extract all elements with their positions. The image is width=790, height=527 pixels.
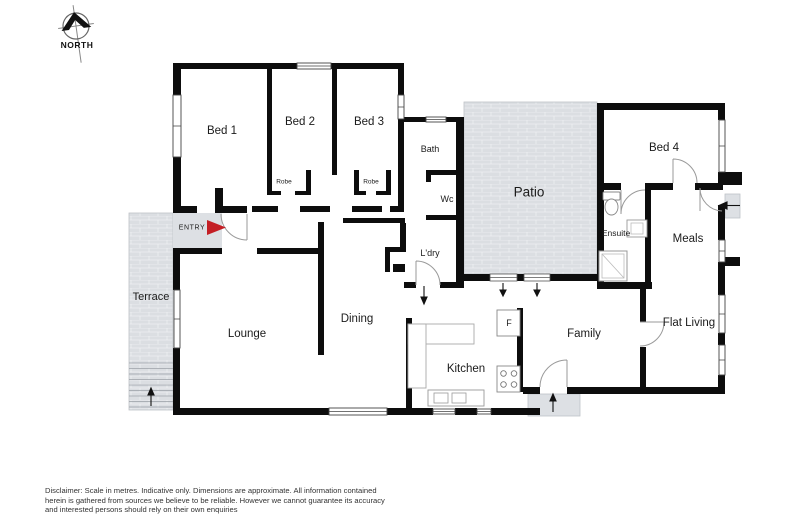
bed4-door — [673, 159, 697, 183]
room-label-bed3: Bed 3 — [354, 116, 384, 128]
terrace-paving — [129, 213, 173, 410]
room-label-lounge: Lounge — [228, 328, 266, 340]
fridge-label: F — [506, 318, 512, 328]
disclaimer-line-3: and interested persons should rely on th… — [45, 505, 385, 515]
laundry-door — [416, 261, 440, 285]
room-label-meals: Meals — [673, 233, 704, 245]
room-label-laundry: L'dry — [420, 248, 439, 258]
robe-label-bed2: Robe — [276, 179, 292, 186]
north-compass-icon — [55, 3, 99, 65]
room-label-patio: Patio — [514, 185, 545, 200]
room-label-dining: Dining — [341, 313, 374, 325]
floor-plan-drawing — [0, 0, 790, 527]
room-label-bed4: Bed 4 — [649, 142, 679, 154]
flat-living-door — [640, 322, 664, 346]
kitchen-sink-icon — [428, 390, 484, 406]
room-label-terrace: Terrace — [133, 291, 170, 303]
room-label-family: Family — [567, 328, 601, 340]
ensuite-door — [621, 190, 645, 214]
compass-label: NORTH — [61, 40, 94, 50]
room-label-bed1: Bed 1 — [207, 125, 237, 137]
room-label-bath: Bath — [421, 144, 440, 154]
room-label-ensuite: Ensuite — [602, 228, 630, 238]
floor-plan: NORTH Bed 1 Bed 2 Bed 3 Robe Robe Bath W… — [0, 0, 790, 527]
stove-icon — [497, 366, 520, 392]
disclaimer-line-1: Disclaimer: Scale in metres. Indicative … — [45, 486, 385, 496]
room-label-bed2: Bed 2 — [285, 116, 315, 128]
room-label-flat-living: Flat Living — [663, 317, 715, 329]
direction-arrows — [148, 202, 740, 412]
room-label-entry: ENTRY — [179, 225, 206, 232]
room-label-kitchen: Kitchen — [447, 363, 485, 375]
disclaimer: Disclaimer: Scale in metres. Indicative … — [45, 486, 385, 515]
robe-label-bed3: Robe — [363, 179, 379, 186]
room-label-wc: Wc — [441, 194, 454, 204]
family-exterior-door — [540, 360, 567, 387]
disclaimer-line-2: herein is gathered from sources we belie… — [45, 496, 385, 506]
kitchen-bench-icon — [408, 324, 426, 388]
entry-door — [221, 214, 247, 240]
